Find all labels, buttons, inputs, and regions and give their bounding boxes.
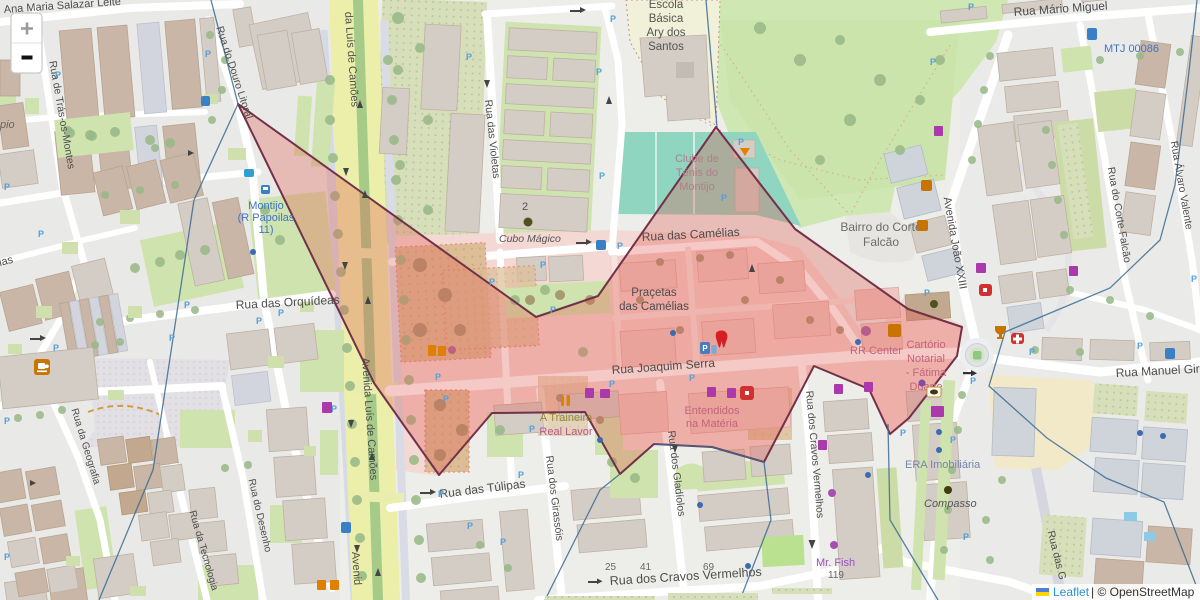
svg-text:P: P: [438, 489, 444, 499]
svg-text:Notarial: Notarial: [907, 353, 945, 365]
svg-text:Montijo: Montijo: [248, 200, 283, 212]
svg-text:pio: pio: [0, 119, 15, 131]
svg-text:P: P: [1137, 341, 1143, 351]
svg-text:ERA Imobiliária: ERA Imobiliária: [905, 459, 981, 471]
svg-text:Mr. Fish: Mr. Fish: [816, 557, 855, 569]
svg-text:P: P: [610, 14, 616, 24]
svg-text:P: P: [518, 470, 524, 480]
svg-text:MTJ 00086: MTJ 00086: [1104, 43, 1159, 55]
svg-text:P: P: [1191, 274, 1197, 284]
svg-text:P: P: [721, 193, 727, 203]
svg-text:Entendidos: Entendidos: [684, 405, 740, 417]
svg-text:P: P: [540, 260, 546, 270]
svg-text:P: P: [466, 52, 472, 62]
svg-text:Escola: Escola: [649, 0, 684, 11]
svg-text:P: P: [38, 229, 44, 239]
svg-text:P: P: [950, 435, 956, 445]
svg-text:P: P: [963, 532, 969, 542]
svg-text:69: 69: [703, 562, 715, 573]
svg-text:Santos: Santos: [648, 41, 684, 53]
svg-text:P: P: [205, 49, 211, 59]
svg-text:P: P: [55, 70, 61, 80]
svg-text:119: 119: [828, 570, 844, 581]
svg-text:P: P: [529, 424, 535, 434]
svg-text:Montijo: Montijo: [679, 181, 714, 193]
svg-text:Falcão: Falcão: [863, 235, 899, 249]
svg-text:Cartório: Cartório: [906, 339, 945, 351]
svg-text:P: P: [256, 316, 262, 326]
svg-text:| © OpenStreetMap: | © OpenStreetMap: [1091, 585, 1195, 599]
svg-text:P: P: [738, 137, 744, 147]
svg-text:P: P: [970, 376, 976, 386]
svg-text:P: P: [169, 333, 175, 343]
svg-text:P: P: [184, 300, 190, 310]
svg-text:P: P: [596, 67, 602, 77]
svg-text:25: 25: [605, 562, 617, 573]
svg-text:Básica: Básica: [649, 13, 684, 25]
svg-text:P: P: [609, 379, 615, 389]
svg-text:P: P: [489, 277, 495, 287]
svg-text:das Camélias: das Camélias: [619, 301, 689, 313]
svg-text:Praçetas: Praçetas: [631, 287, 677, 299]
svg-text:P: P: [689, 373, 695, 383]
svg-text:11): 11): [258, 224, 273, 236]
svg-text:P: P: [702, 344, 708, 353]
svg-text:(R Papoilas: (R Papoilas: [238, 212, 295, 224]
svg-text:P: P: [599, 171, 605, 181]
svg-text:RR Center: RR Center: [850, 345, 902, 357]
svg-text:Bairro do Corte: Bairro do Corte: [840, 220, 922, 234]
svg-text:P: P: [4, 552, 10, 562]
svg-text:P: P: [1029, 347, 1035, 357]
svg-text:P: P: [550, 305, 556, 315]
svg-text:P: P: [968, 2, 974, 12]
svg-text:P: P: [900, 428, 906, 438]
svg-text:Ary dos: Ary dos: [647, 27, 686, 39]
svg-text:P: P: [278, 308, 284, 318]
svg-text:Avenid: Avenid: [349, 551, 363, 585]
svg-text:P: P: [500, 537, 506, 547]
svg-text:P: P: [4, 416, 10, 426]
svg-text:P: P: [53, 343, 59, 353]
svg-text:Cubo Mágico: Cubo Mágico: [499, 233, 561, 245]
svg-text:P: P: [930, 57, 936, 67]
svg-text:Leaflet: Leaflet: [1053, 585, 1090, 599]
svg-text:Compasso: Compasso: [924, 498, 977, 510]
svg-text:41: 41: [640, 562, 652, 573]
svg-text:2: 2: [522, 201, 528, 213]
svg-text:P: P: [467, 521, 473, 531]
svg-text:A Traineira: A Traineira: [540, 412, 593, 424]
svg-text:Ténis do: Ténis do: [676, 167, 718, 179]
svg-text:P: P: [924, 288, 930, 298]
svg-text:P: P: [435, 372, 441, 382]
svg-text:Clube de: Clube de: [675, 153, 719, 165]
svg-text:Real Lavor: Real Lavor: [539, 426, 593, 438]
svg-text:- Fátima: - Fátima: [906, 367, 947, 379]
svg-text:P: P: [617, 241, 623, 251]
svg-text:P: P: [443, 394, 449, 404]
svg-text:P: P: [4, 182, 10, 192]
svg-text:na Matéria: na Matéria: [686, 418, 739, 430]
